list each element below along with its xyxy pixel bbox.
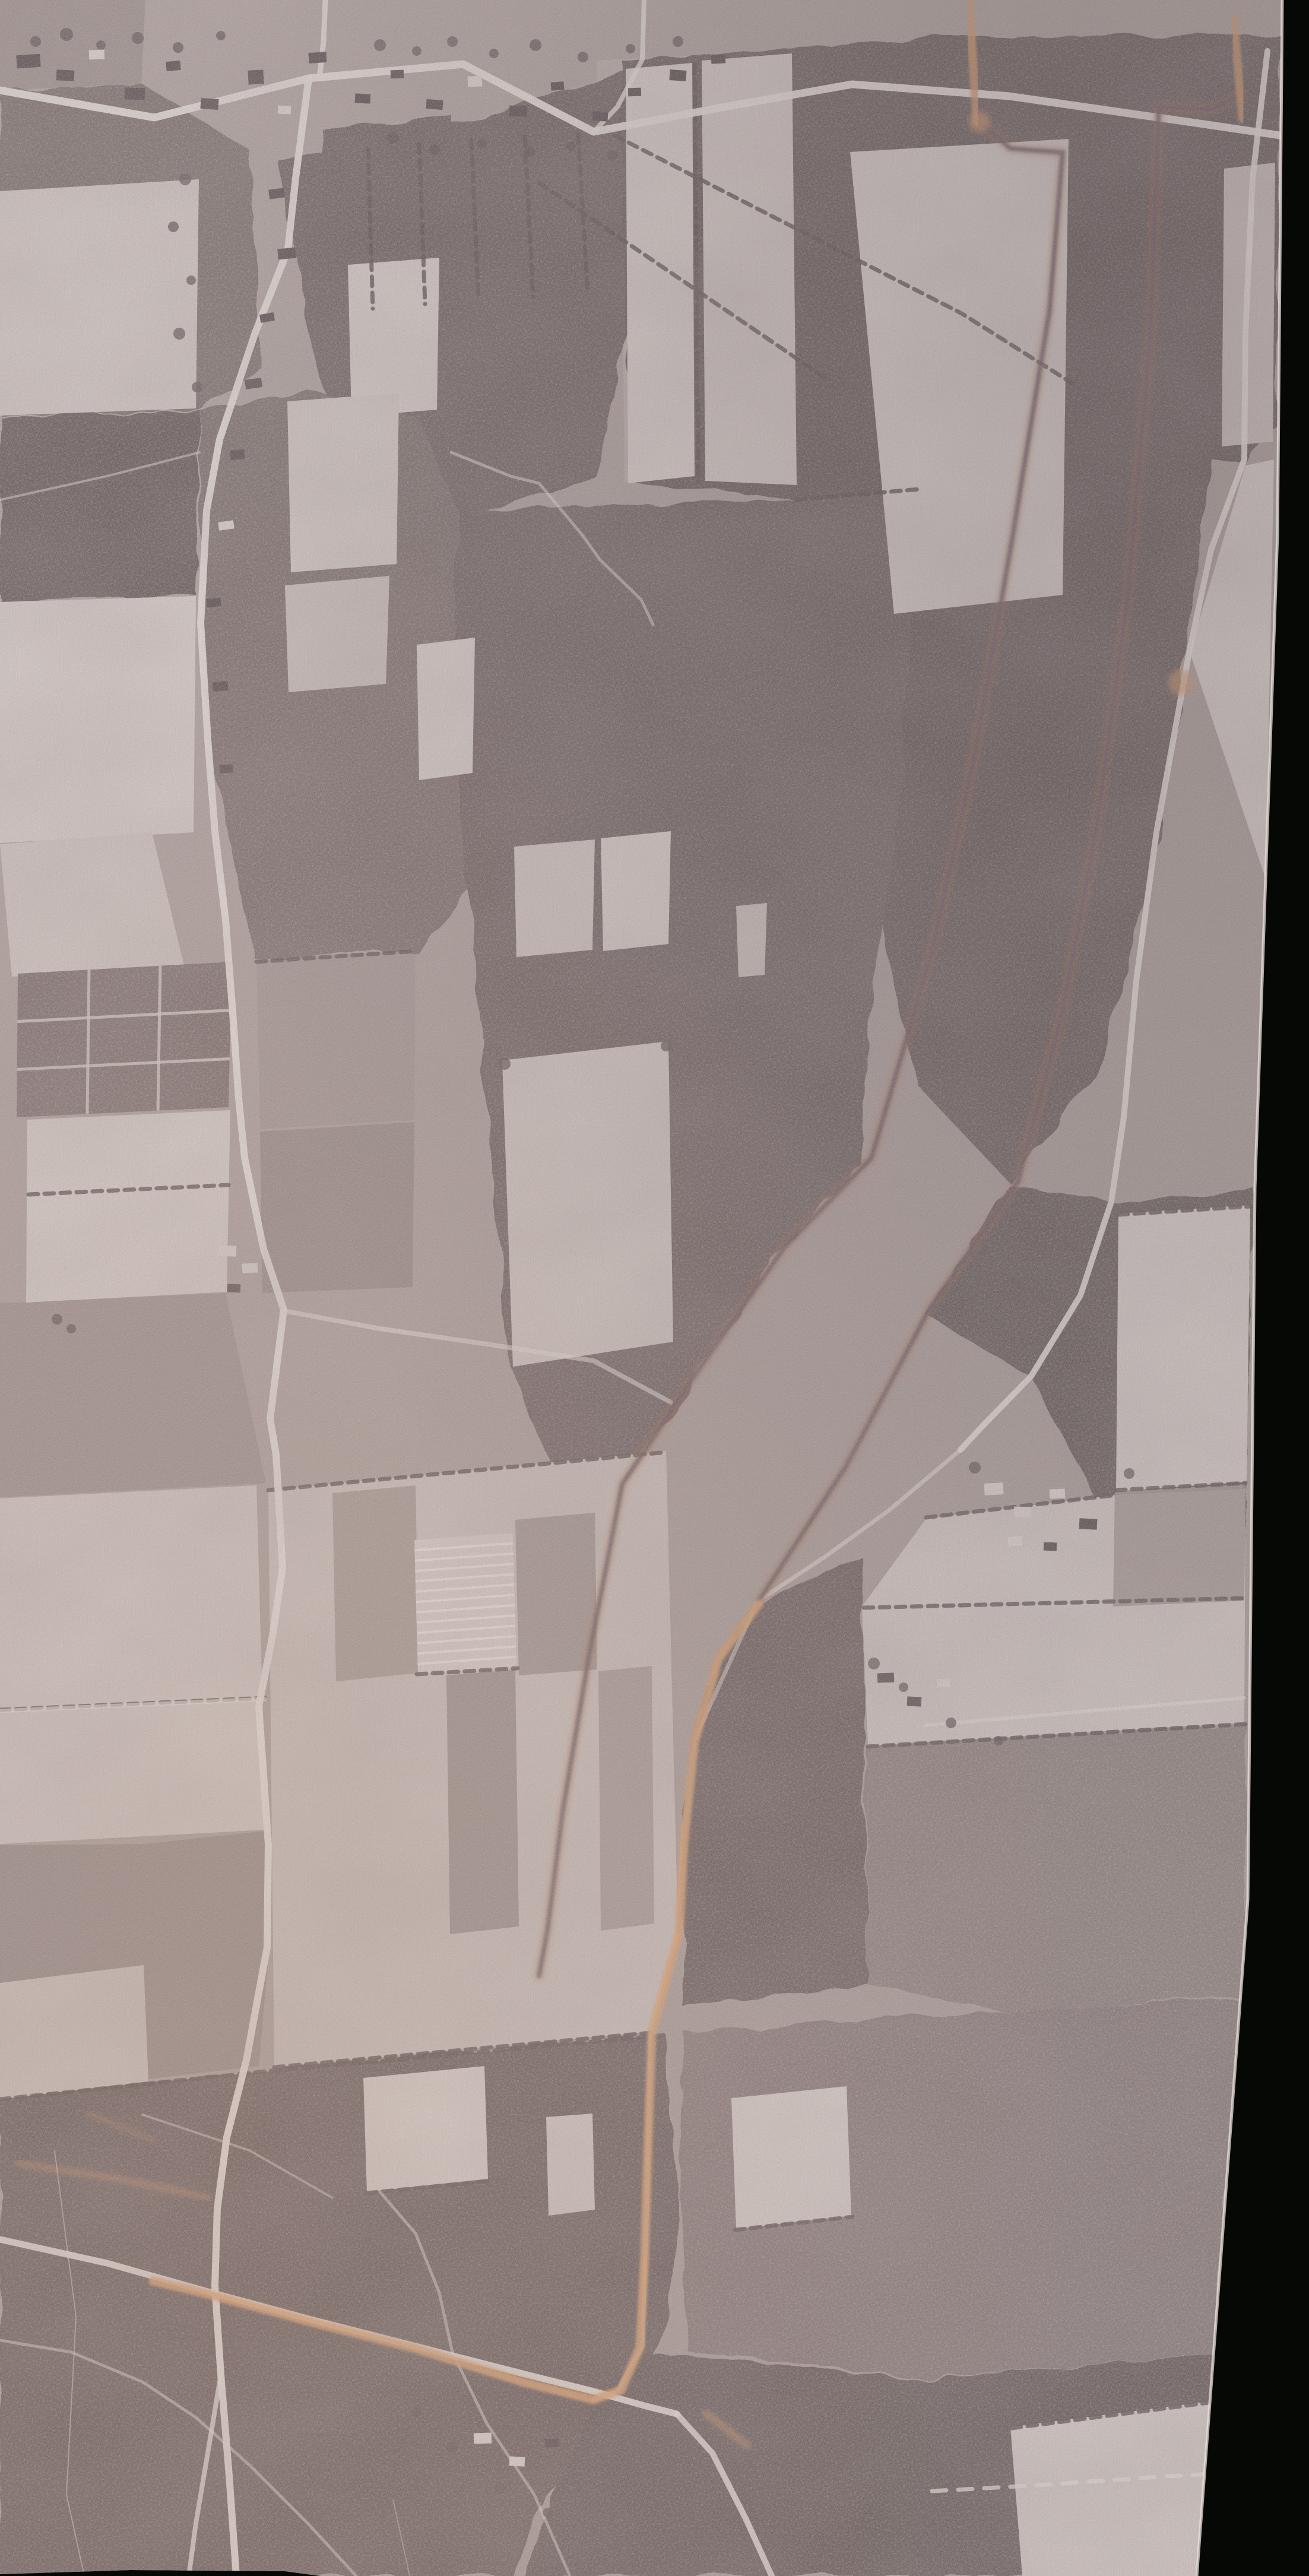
dark-cast-overlay [0,0,1309,2576]
aerial-photo-svg [0,0,1309,2576]
photo-surface [0,0,1309,2576]
scanned-photo-page [0,0,1309,2576]
